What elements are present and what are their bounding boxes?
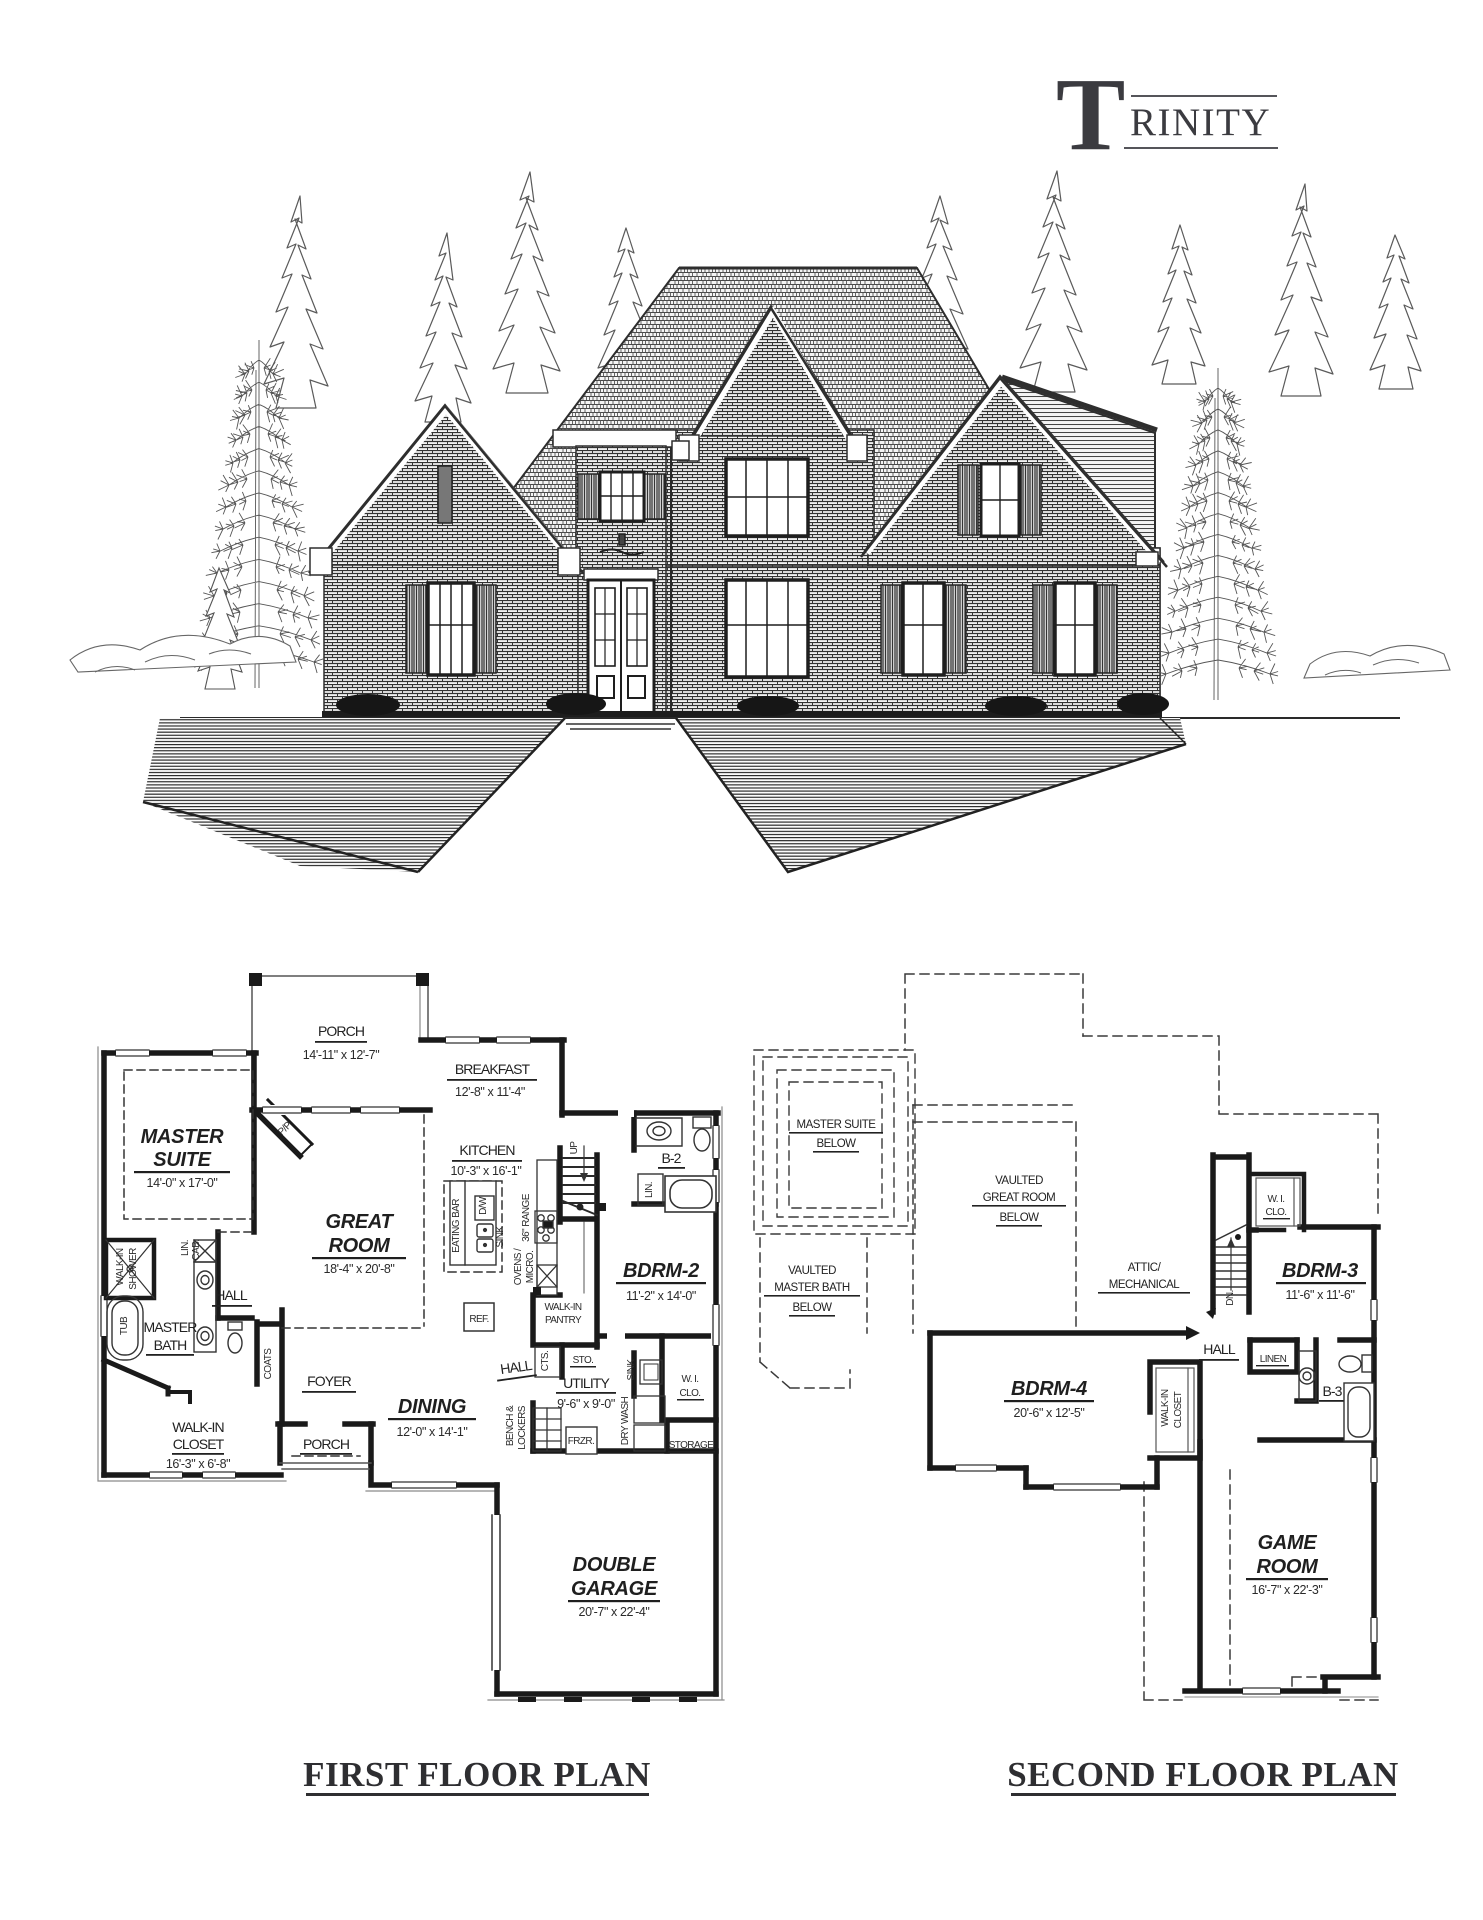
svg-text:18'-4" x 20'-8": 18'-4" x 20'-8" <box>324 1262 395 1276</box>
svg-text:CLOSET: CLOSET <box>1173 1391 1184 1428</box>
svg-text:VAULTED: VAULTED <box>995 1175 1043 1187</box>
svg-text:SUITE: SUITE <box>153 1149 211 1171</box>
svg-text:SECOND FLOOR PLAN: SECOND FLOOR PLAN <box>1007 1755 1399 1794</box>
svg-text:UP: UP <box>569 1141 580 1155</box>
svg-text:FIRST FLOOR PLAN: FIRST FLOOR PLAN <box>303 1755 651 1794</box>
svg-text:LIN.: LIN. <box>644 1182 655 1198</box>
svg-text:BDRM-4: BDRM-4 <box>1011 1378 1087 1400</box>
svg-text:OVENS /: OVENS / <box>513 1248 524 1285</box>
svg-text:20'-6" x 12'-5": 20'-6" x 12'-5" <box>1014 1406 1085 1420</box>
svg-text:UTILITY: UTILITY <box>563 1375 610 1391</box>
svg-text:HALL: HALL <box>1203 1341 1236 1357</box>
svg-text:EATING BAR: EATING BAR <box>451 1199 462 1253</box>
svg-text:COATS: COATS <box>263 1348 274 1380</box>
svg-text:SINK: SINK <box>626 1359 637 1381</box>
svg-text:CLOSET: CLOSET <box>173 1436 225 1452</box>
svg-text:WALK-IN: WALK-IN <box>115 1248 126 1285</box>
svg-text:STO.: STO. <box>573 1355 594 1366</box>
svg-text:20'-7" x 22'-4": 20'-7" x 22'-4" <box>579 1605 650 1619</box>
svg-text:W. I.: W. I. <box>681 1374 698 1385</box>
svg-text:12'-0" x 14'-1": 12'-0" x 14'-1" <box>397 1425 468 1439</box>
svg-text:MASTER: MASTER <box>144 1319 198 1335</box>
svg-text:MASTER: MASTER <box>141 1126 225 1148</box>
svg-text:D/W: D/W <box>478 1196 489 1215</box>
svg-text:FRZR.: FRZR. <box>568 1436 594 1447</box>
svg-text:W. I.: W. I. <box>1267 1194 1284 1205</box>
svg-text:PORCH: PORCH <box>303 1436 349 1452</box>
svg-text:T: T <box>1056 57 1125 172</box>
svg-text:B-3: B-3 <box>1322 1383 1342 1399</box>
svg-text:WALK-IN: WALK-IN <box>1160 1389 1171 1426</box>
svg-text:KITCHEN: KITCHEN <box>459 1142 514 1158</box>
svg-text:CAB.: CAB. <box>191 1240 202 1261</box>
svg-text:CLO.: CLO. <box>680 1388 701 1399</box>
svg-text:11'-6" x 11'-6": 11'-6" x 11'-6" <box>1285 1288 1354 1302</box>
svg-text:SHOWER: SHOWER <box>128 1248 139 1290</box>
svg-text:WALK-IN: WALK-IN <box>172 1419 224 1435</box>
svg-text:LOCKERS: LOCKERS <box>517 1405 528 1450</box>
svg-text:WALK-IN: WALK-IN <box>544 1302 581 1313</box>
svg-text:11'-2" x 14'-0": 11'-2" x 14'-0" <box>626 1289 696 1303</box>
svg-text:BREAKFAST: BREAKFAST <box>455 1061 531 1077</box>
svg-text:16'-7" x 22'-3": 16'-7" x 22'-3" <box>1252 1583 1323 1597</box>
svg-text:RINITY: RINITY <box>1130 101 1271 144</box>
svg-text:HALL: HALL <box>215 1287 248 1303</box>
svg-text:PORCH: PORCH <box>318 1023 364 1039</box>
svg-text:GARAGE: GARAGE <box>571 1578 658 1600</box>
svg-text:14'-11" x 12'-7": 14'-11" x 12'-7" <box>303 1048 380 1062</box>
svg-text:VAULTED: VAULTED <box>788 1265 836 1277</box>
svg-text:DN.: DN. <box>1225 1290 1236 1305</box>
svg-text:HALL: HALL <box>499 1357 533 1377</box>
svg-text:DINING: DINING <box>398 1396 466 1418</box>
svg-text:TUB: TUB <box>119 1316 130 1335</box>
svg-text:14'-0" x 17'-0": 14'-0" x 17'-0" <box>147 1176 218 1190</box>
svg-text:BELOW: BELOW <box>816 1138 856 1150</box>
svg-text:B-2: B-2 <box>661 1150 681 1166</box>
svg-text:GAME: GAME <box>1258 1532 1318 1554</box>
svg-text:MECHANICAL: MECHANICAL <box>1109 1279 1181 1291</box>
svg-text:ATTIC/: ATTIC/ <box>1128 1262 1162 1274</box>
svg-text:LINEN: LINEN <box>1260 1354 1287 1365</box>
svg-text:SINK: SINK <box>495 1226 506 1248</box>
svg-text:MASTER SUITE: MASTER SUITE <box>797 1119 877 1131</box>
svg-text:LIN.: LIN. <box>180 1240 191 1256</box>
svg-text:9'-6" x 9'-0": 9'-6" x 9'-0" <box>557 1397 615 1411</box>
svg-text:16'-3" x 6'-8": 16'-3" x 6'-8" <box>166 1457 230 1471</box>
svg-text:10'-3" x 16'-1": 10'-3" x 16'-1" <box>451 1164 522 1178</box>
svg-text:36" RANGE: 36" RANGE <box>521 1193 532 1242</box>
svg-text:BATH: BATH <box>154 1337 187 1353</box>
svg-text:BELOW: BELOW <box>792 1302 832 1314</box>
svg-text:BENCH &: BENCH & <box>505 1405 516 1446</box>
svg-text:DRY WASH: DRY WASH <box>620 1396 631 1445</box>
svg-text:CLO.: CLO. <box>1266 1207 1287 1218</box>
svg-text:MASTER BATH: MASTER BATH <box>774 1282 850 1294</box>
svg-text:BDRM-3: BDRM-3 <box>1282 1260 1358 1282</box>
svg-text:DOUBLE: DOUBLE <box>573 1554 657 1576</box>
svg-text:REF.: REF. <box>469 1314 488 1325</box>
svg-text:BELOW: BELOW <box>999 1212 1039 1224</box>
svg-text:FOYER: FOYER <box>307 1373 352 1389</box>
svg-text:PANTRY: PANTRY <box>545 1315 582 1326</box>
svg-text:GREAT: GREAT <box>325 1211 394 1233</box>
svg-text:12'-8" x 11'-4": 12'-8" x 11'-4" <box>455 1085 525 1099</box>
svg-text:GREAT ROOM: GREAT ROOM <box>983 1192 1056 1204</box>
svg-text:ROOM: ROOM <box>1256 1556 1319 1578</box>
svg-text:CTS.: CTS. <box>540 1351 551 1371</box>
svg-text:ROOM: ROOM <box>328 1235 391 1257</box>
svg-text:STORAGE: STORAGE <box>669 1440 714 1451</box>
svg-text:BDRM-2: BDRM-2 <box>623 1260 699 1282</box>
svg-text:MICRO.: MICRO. <box>525 1251 536 1284</box>
